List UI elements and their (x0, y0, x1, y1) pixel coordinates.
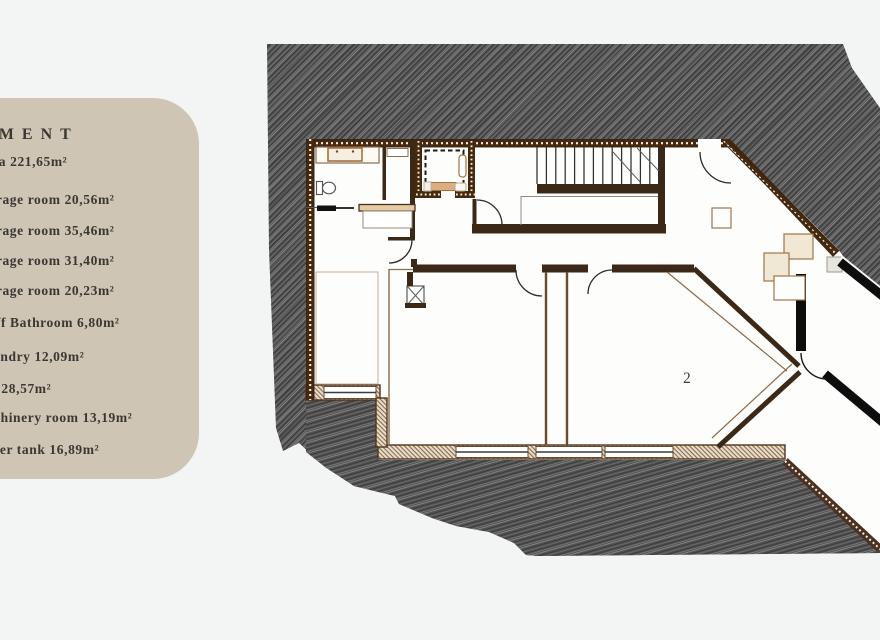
svg-text:2: 2 (683, 370, 691, 387)
